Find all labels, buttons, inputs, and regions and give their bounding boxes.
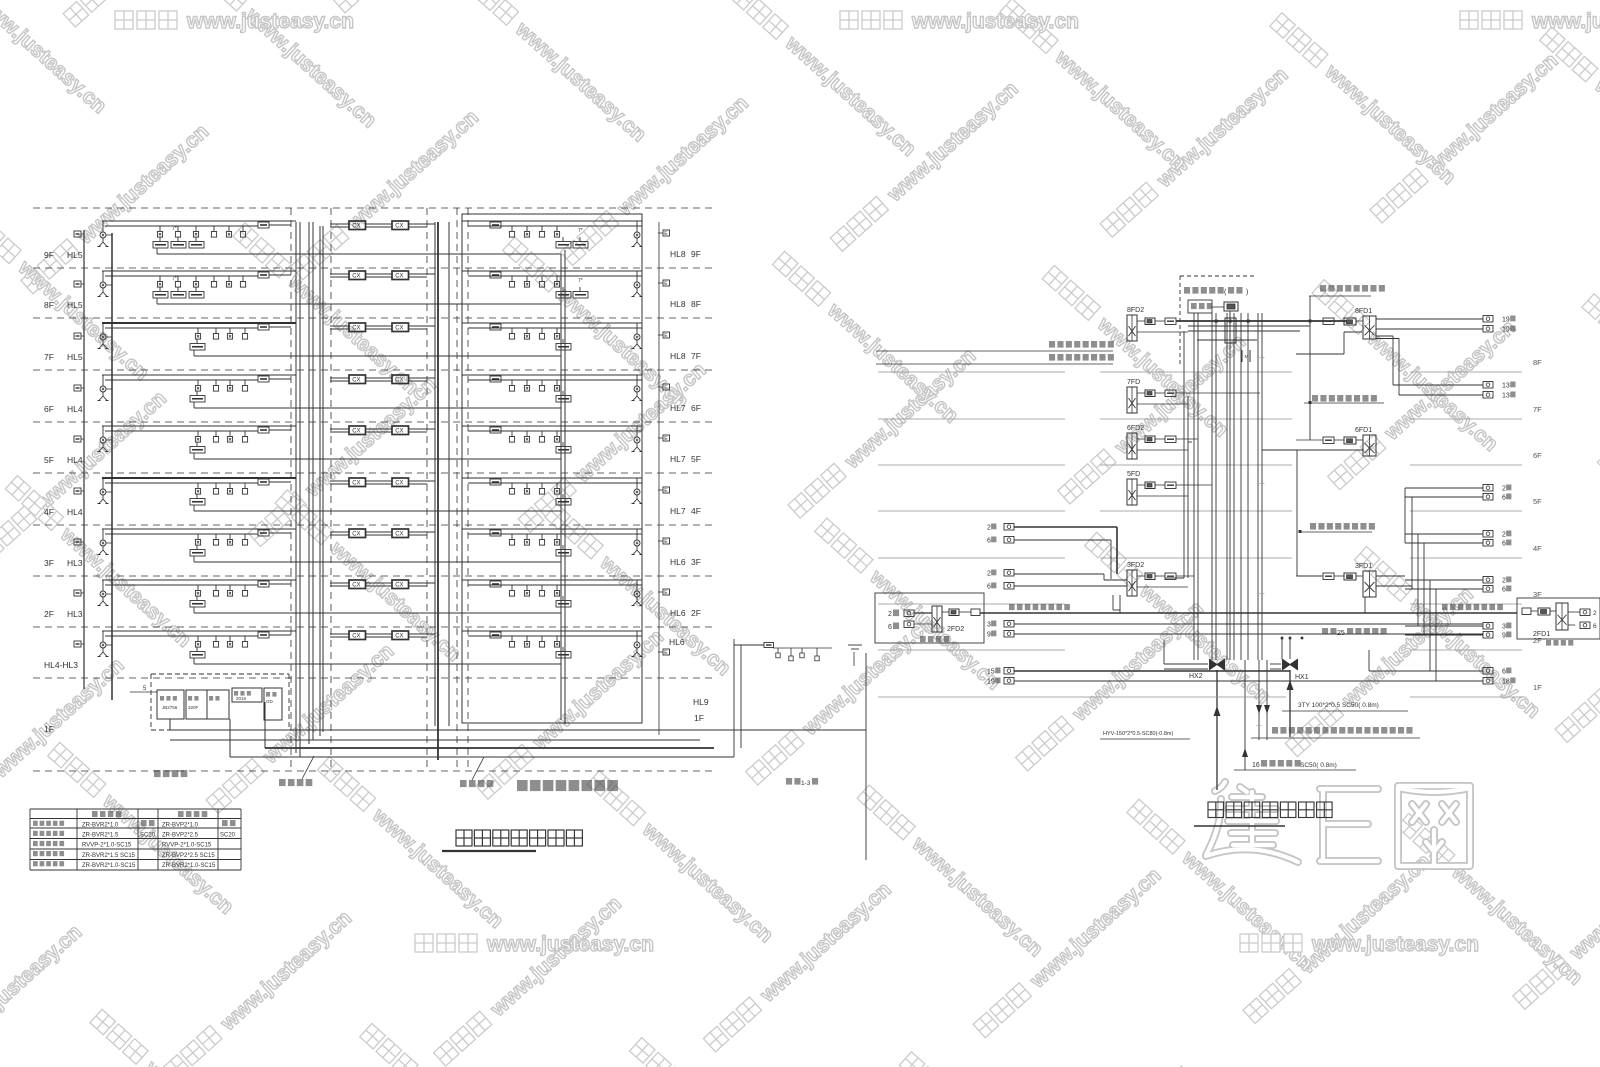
svg-text:2F: 2F [691,608,701,618]
svg-text:CX: CX [352,634,360,640]
svg-text:2F: 2F [44,609,54,619]
svg-text:HL7: HL7 [670,403,686,413]
svg-text:GD: GD [266,699,274,704]
svg-text:7*: 7* [172,276,177,282]
svg-text:ZR-BVP2*2.5 SC15: ZR-BVP2*2.5 SC15 [162,853,215,859]
svg-text:HL8: HL8 [670,351,686,361]
svg-text:6F: 6F [1533,451,1542,460]
svg-text:HL7: HL7 [670,454,686,464]
svg-text:2: 2 [1502,486,1506,493]
svg-text:ZR-BVR2*1.5: ZR-BVR2*1.5 [82,833,119,839]
svg-text:HX1: HX1 [1295,674,1309,681]
svg-text:7F: 7F [44,352,54,362]
svg-text:8F: 8F [44,300,54,310]
svg-text:7F: 7F [1533,405,1542,414]
svg-text:2FD2: 2FD2 [947,626,964,633]
svg-text:3: 3 [987,622,991,629]
svg-text:CX: CX [395,274,403,280]
svg-text:CX: CX [352,224,360,230]
svg-text:CX: CX [395,378,403,384]
svg-text:6FD1: 6FD1 [1355,427,1372,434]
svg-text:25: 25 [1337,630,1345,637]
svg-text:4F: 4F [44,507,54,517]
svg-text:...: ... [1259,589,1265,596]
svg-text:HL5: HL5 [67,300,83,310]
svg-text:2FD1: 2FD1 [1533,631,1550,638]
svg-text:5F: 5F [1533,497,1542,506]
svg-text:320F: 320F [188,705,199,710]
svg-text:6: 6 [1502,495,1506,502]
svg-text:JB2756: JB2756 [162,705,178,710]
svg-text:CX: CX [395,326,403,332]
svg-text:3FD2: 3FD2 [1127,562,1144,569]
svg-text:5F: 5F [44,455,54,465]
svg-text:8F: 8F [1533,358,1542,367]
svg-text:6: 6 [987,538,991,545]
svg-text:HL6: HL6 [670,608,686,618]
svg-text:19: 19 [1502,327,1510,334]
svg-text:ZR-BVR2*1.0: ZR-BVR2*1.0 [82,823,119,829]
svg-text:): ) [1246,289,1248,296]
svg-text:CX: CX [352,274,360,280]
svg-text:CX: CX [352,532,360,538]
svg-text:HX2: HX2 [1189,673,1203,680]
svg-text:ZR-BVR2*1.5 SC15: ZR-BVR2*1.5 SC15 [82,853,136,859]
svg-text:CX: CX [395,429,403,435]
svg-text:HL4: HL4 [67,455,83,465]
svg-text:ZR-BVR2*1.0-SC15: ZR-BVR2*1.0-SC15 [82,863,136,869]
svg-text:5F: 5F [691,454,701,464]
svg-text:8F: 8F [691,299,701,309]
svg-text:HL5: HL5 [67,352,83,362]
svg-text:13: 13 [1502,383,1510,390]
svg-text:6F: 6F [44,404,54,414]
svg-text:1F: 1F [44,724,54,734]
svg-text:2: 2 [1502,578,1506,585]
svg-text:18: 18 [1502,679,1510,686]
svg-text:...: ... [1256,721,1262,728]
svg-text:7F: 7F [691,351,701,361]
svg-text:16: 16 [1252,762,1260,769]
svg-text:3F: 3F [691,557,701,567]
svg-text:19: 19 [987,679,995,686]
svg-text:4F: 4F [691,506,701,516]
svg-text:3FD1: 3FD1 [1355,563,1372,570]
svg-text:SC20: SC20 [220,833,236,839]
svg-text:9F: 9F [691,249,701,259]
svg-text:ZR-BVP2*1.0: ZR-BVP2*1.0 [162,823,199,829]
svg-text:CX: CX [395,224,403,230]
svg-text:RVVP-2*1.0-SC15: RVVP-2*1.0-SC15 [162,843,212,849]
svg-text:7*: 7* [578,278,583,284]
svg-text:CX: CX [395,583,403,589]
svg-text:HL6: HL6 [669,637,685,647]
svg-text:5FD: 5FD [1127,471,1140,478]
svg-text:HL6: HL6 [670,557,686,567]
svg-text:6: 6 [987,584,991,591]
svg-text:6: 6 [1593,623,1597,630]
svg-text:9: 9 [987,632,991,639]
svg-text:6: 6 [1502,669,1506,676]
svg-text:19: 19 [1502,317,1510,324]
svg-text:CX: CX [352,378,360,384]
svg-text:HL3: HL3 [67,609,83,619]
svg-text:13: 13 [1502,393,1510,400]
svg-text:...: ... [1259,353,1265,360]
svg-text:6: 6 [1502,587,1506,594]
svg-text:CX: CX [352,429,360,435]
svg-text:CX: CX [395,532,403,538]
svg-text:SC50( 0.8m): SC50( 0.8m) [1300,762,1337,769]
svg-text:8FD2: 8FD2 [1127,307,1144,314]
svg-text:6F: 6F [691,403,701,413]
svg-text:HYV-150*2*0.5-SC80(-0.8m): HYV-150*2*0.5-SC80(-0.8m) [1103,731,1173,737]
svg-text:RVVP-2*1.0-SC15: RVVP-2*1.0-SC15 [82,843,132,849]
svg-text:7*: 7* [172,226,177,232]
svg-text:HL5: HL5 [67,250,83,260]
svg-text:2: 2 [1593,610,1597,617]
svg-text:HL4: HL4 [67,507,83,517]
svg-text:4F: 4F [1533,544,1542,553]
svg-text:15: 15 [987,669,995,676]
svg-text:6FD2: 6FD2 [1127,425,1144,432]
svg-text:9: 9 [1502,633,1506,640]
svg-text:CX: CX [352,481,360,487]
svg-text:CX: CX [352,583,360,589]
svg-text:6: 6 [888,624,892,631]
svg-text:1F: 1F [1533,683,1542,692]
svg-text:1F: 1F [694,713,704,723]
svg-text:2: 2 [888,611,892,618]
svg-text:2: 2 [987,571,991,578]
svg-text:SC20: SC20 [140,833,156,839]
svg-text:2016: 2016 [236,696,247,701]
svg-text:CX: CX [352,326,360,332]
svg-text:2: 2 [987,525,991,532]
svg-text:3TY 100*2*0.5 SC50( 0.8m): 3TY 100*2*0.5 SC50( 0.8m) [1298,702,1379,709]
svg-text:9F: 9F [44,250,54,260]
svg-text:CX: CX [395,481,403,487]
svg-text:3: 3 [1502,624,1506,631]
svg-text:...: ... [1259,479,1265,486]
svg-text:CX: CX [395,634,403,640]
svg-text:HL4: HL4 [67,404,83,414]
svg-text:HL4-HL3: HL4-HL3 [44,660,78,670]
svg-text:HL3: HL3 [67,558,83,568]
svg-text:3F: 3F [44,558,54,568]
svg-text:HL8: HL8 [670,249,686,259]
svg-text:7FD: 7FD [1127,379,1140,386]
svg-text:ZR-BVR2*1.0-SC15: ZR-BVR2*1.0-SC15 [162,863,216,869]
svg-text:M: M [1245,354,1249,359]
svg-text:HL8: HL8 [670,299,686,309]
svg-text:HL9: HL9 [693,697,709,707]
svg-text:ZR-BVP2*2.5: ZR-BVP2*2.5 [162,833,199,839]
svg-text:6: 6 [1502,541,1506,548]
svg-text:8FD1: 8FD1 [1355,308,1372,315]
svg-text:1-3: 1-3 [801,780,811,787]
svg-text:7*: 7* [578,228,583,234]
svg-text:HL7: HL7 [670,506,686,516]
svg-text:2: 2 [1502,532,1506,539]
